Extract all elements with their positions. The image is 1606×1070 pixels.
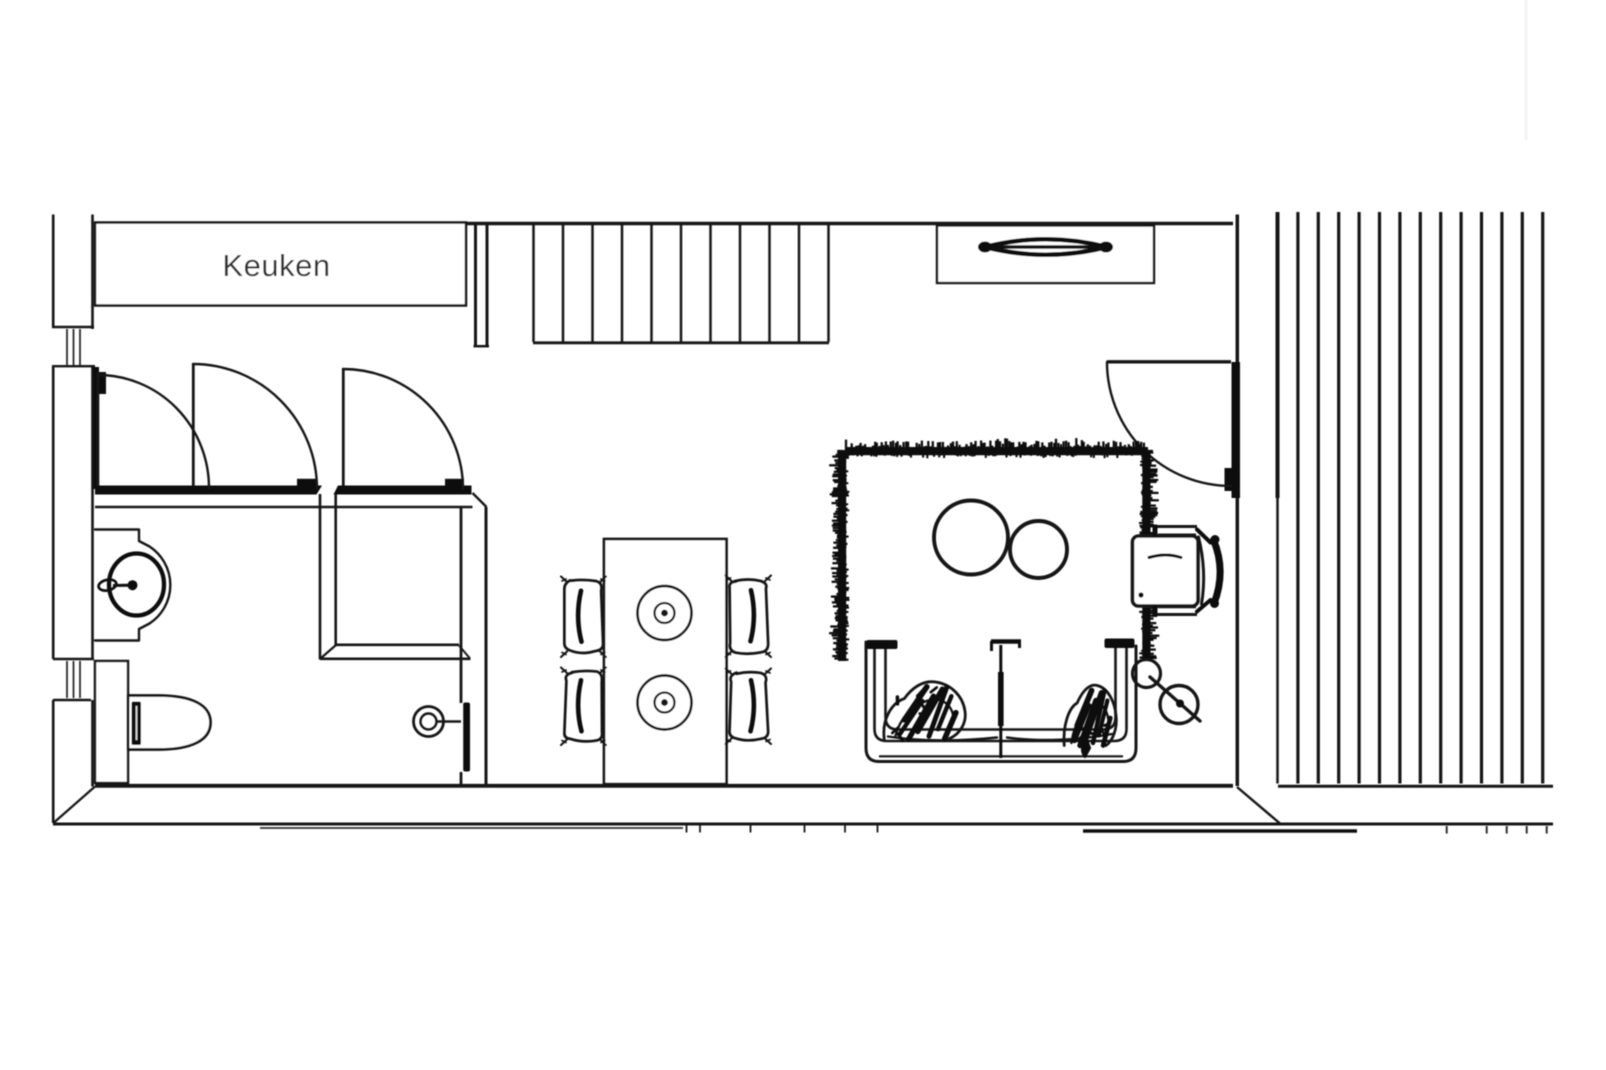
- svg-text:Keuken: Keuken: [222, 248, 330, 283]
